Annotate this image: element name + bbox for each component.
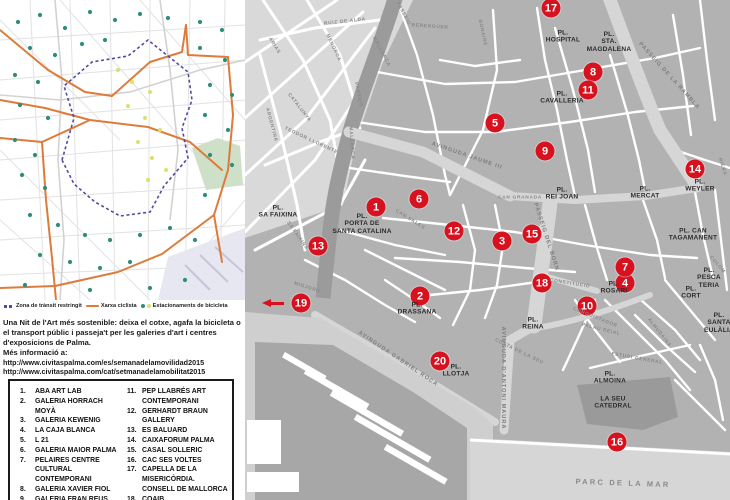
street-label: ESTUDI GENERAL [611,352,663,366]
gallery-list-item: 7.PELAIRES CENTRE CULTURAL CONTEMPORANI [20,456,121,485]
street-label: ARIAS [267,37,281,55]
gallery-list-item: 18.COAIB [127,495,228,500]
legend-bike-parking: Estacionaments de bicicleta [141,303,228,309]
gallery-list-item: 14.CAIXAFORUM PALMA [127,436,228,446]
gallery-name: LA CAJA BLANCA [35,426,121,436]
place-label: PL. HOSPITAL [546,30,580,45]
place-label: PL. SA FAIXINA [259,205,298,220]
gallery-name: GALERIA KEWENIG [35,416,121,426]
info-link-es[interactable]: http://www.civitaspalma.com/es/semanadel… [3,358,204,367]
legend-restricted-zone: Zona de trànsit restringit [4,303,82,309]
info-panel: Zona de trànsit restringit Xarxa ciclist… [0,0,245,500]
gallery-number: 12. [127,407,142,427]
map-marker-8: 8 [584,63,603,82]
street-label: SA FAIXINA [285,221,308,252]
gallery-number: 3. [20,416,35,426]
legend-label: Zona de trànsit restringit [16,303,82,309]
gallery-name: PEP LLABRÉS ART CONTEMPORANI [142,387,228,407]
street-label: BONAIRE [477,19,488,46]
map-marker-7: 7 [616,258,635,277]
street-label: CAN SALES [394,209,426,231]
street-label: CATALUNYA [286,93,311,124]
map-marker-6: 6 [410,190,429,209]
gallery-list-item: 12.GERHARDT BRAUN GALLERY [127,407,228,427]
gallery-list-item: 11.PEP LLABRÉS ART CONTEMPORANI [127,387,228,407]
gallery-number: 5. [20,436,35,446]
map-marker-16: 16 [608,433,627,452]
street-label: AVINGUDA JAUME III [431,141,503,171]
place-label: LA SEU CATEDRAL [594,396,631,411]
gallery-number: 8. [20,485,35,495]
direction-arrow-icon [262,299,284,307]
gallery-col-left: 1.ABA ART LAB2.GALERIA HORRACH MOYÀ3.GAL… [20,387,121,500]
legend-label: Estacionaments de bicicleta [153,303,228,309]
gallery-name: GALERIA XAVIER FIOL [35,485,121,495]
mini-map [0,0,245,300]
gallery-number: 7. [20,456,35,485]
street-label: TEODOR LLORENTE [284,126,339,155]
street-label: AVINGUDA D'ANTONI MAURA [500,327,506,430]
gallery-number: 6. [20,446,35,456]
more-info-label: Més informació a: [3,348,68,357]
gallery-name: PELAIRES CENTRE CULTURAL CONTEMPORANI [35,456,121,485]
gallery-name: GALERIA HORRACH MOYÀ [35,397,121,417]
restricted-zone-icon [4,305,14,308]
street-label: RIERA [717,157,727,176]
place-label: PL. PORTA DE SANTA CATALINA [332,213,391,235]
gallery-list-item: 8.GALERIA XAVIER FIOL [20,485,121,495]
map-marker-19: 19 [292,294,311,313]
street-label: MIGJORN [293,281,321,294]
street-label: BERENGUER [411,23,448,31]
map-marker-14: 14 [686,160,705,179]
gallery-col-right: 11.PEP LLABRÉS ART CONTEMPORANI12.GERHAR… [127,387,228,500]
place-label: PL. REI JOAN [546,187,579,202]
place-label: PL. SANTA EULÀLIA [704,312,730,334]
street-label: CAN GRANADA [498,196,542,201]
legend-bike-network: Xarxa ciclista [86,303,137,309]
gallery-number: 13. [127,426,142,436]
street-label: PARC DE LA MAR [575,477,670,489]
street-label: CONSTITUCIÓ [549,278,590,289]
street-label: MENORCA [324,33,341,62]
place-label: PL. DRASSANA [398,302,437,317]
gallery-name: GERHARDT BRAUN GALLERY [142,407,228,427]
bike-parking-teal-icon [141,304,145,308]
gallery-list-item: 3.GALERIA KEWENIG [20,416,121,426]
gallery-number: 17. [127,465,142,494]
place-label: PL. MERCAT [631,186,660,201]
place-label: PL. ROSARI [601,281,628,296]
street-label: AVINGUDA GABRIEL ROCA [357,330,439,388]
gallery-number: 11. [127,387,142,407]
gallery-name: COAIB [142,495,228,500]
gallery-number: 4. [20,426,35,436]
gallery-list-item: 16.CAC SES VOLTES [127,456,228,466]
map-marker-5: 5 [486,114,505,133]
place-label: PL. CAVALLERIA [540,91,584,106]
gallery-name: CAPELLA DE LA MISERICÒRDIA. CONSELL DE M… [142,465,228,494]
gallery-list-item: 1.ABA ART LAB [20,387,121,397]
street-label: ARGENTINA [264,108,278,143]
map-marker-12: 12 [445,222,464,241]
gallery-number: 1. [20,387,35,397]
gallery-list-item: 6.GALERIA MAIOR PALMA [20,446,121,456]
gallery-number: 15. [127,446,142,456]
map-marker-9: 9 [536,142,555,161]
gallery-number: 2. [20,397,35,417]
gallery-name: ES BALUARD [142,426,228,436]
bike-network-icon [86,305,99,308]
info-link-cat[interactable]: http://www.civitaspalma.com/cat/setmanad… [3,367,205,376]
map-marker-17: 17 [542,0,561,18]
gallery-name: CAC SES VOLTES [142,456,228,466]
mini-map-legend: Zona de trànsit restringit Xarxa ciclist… [4,303,242,309]
gallery-number: 18. [127,495,142,500]
gallery-number: 14. [127,436,142,446]
gallery-list-item: 17.CAPELLA DE LA MISERICÒRDIA. CONSELL D… [127,465,228,494]
bike-parking-yellow-icon [147,304,151,308]
street-label: PASSEIG [353,82,363,108]
flyer: Zona de trànsit restringit Xarxa ciclist… [0,0,730,500]
gallery-list-item: 15.CASAL SOLLERIC [127,446,228,456]
place-label: PL. LLOTJA [443,364,470,379]
gallery-list-item: 5.L 21 [20,436,121,446]
place-label: PL. ALMOINA [594,371,626,386]
place-label: PL. STA. MAGDALENA [587,31,632,53]
gallery-list-item: 13.ES BALUARD [127,426,228,436]
legend-label: Xarxa ciclista [101,303,137,309]
street-label: MALLORCA [371,36,391,68]
map-overlay: 1234567891011121314151617181920PL. HOSPI… [245,0,730,500]
city-map: 1234567891011121314151617181920PL. HOSPI… [245,0,730,500]
gallery-list-item: 4.LA CAJA BLANCA [20,426,121,436]
gallery-name: CAIXAFORUM PALMA [142,436,228,446]
gallery-name: CASAL SOLLERIC [142,446,228,456]
place-label: PL. WEYLER [685,179,714,194]
place-label: PL. REINA [522,317,544,332]
street-label: MALLORCA [347,126,354,159]
gallery-list-item: 9.GALERIA FRAN REUS [20,495,121,500]
map-marker-15: 15 [523,225,542,244]
gallery-name: ABA ART LAB [35,387,121,397]
gallery-number: 16. [127,456,142,466]
street-label: PASSEIG DE LA RAMBLA [637,41,701,111]
intro-text: Una Nit de l'Art més sostenible: deixa e… [3,318,242,348]
street-label: ALMUDAINA [646,318,672,349]
gallery-name: GALERIA FRAN REUS [35,495,121,500]
street-label: PASSEIG [395,1,412,26]
place-label: PL. CAN TAGAMANENT [669,228,717,243]
gallery-number: 9. [20,495,35,500]
gallery-list-item: 2.GALERIA HORRACH MOYÀ [20,397,121,417]
street-label: RUIZ DE ALDA [324,17,366,26]
gallery-name: GALERIA MAIOR PALMA [35,446,121,456]
gallery-list: 1.ABA ART LAB2.GALERIA HORRACH MOYÀ3.GAL… [8,379,234,500]
map-marker-13: 13 [309,237,328,256]
gallery-name: L 21 [35,436,121,446]
place-label: PL. CORT [681,286,700,301]
map-marker-3: 3 [493,232,512,251]
